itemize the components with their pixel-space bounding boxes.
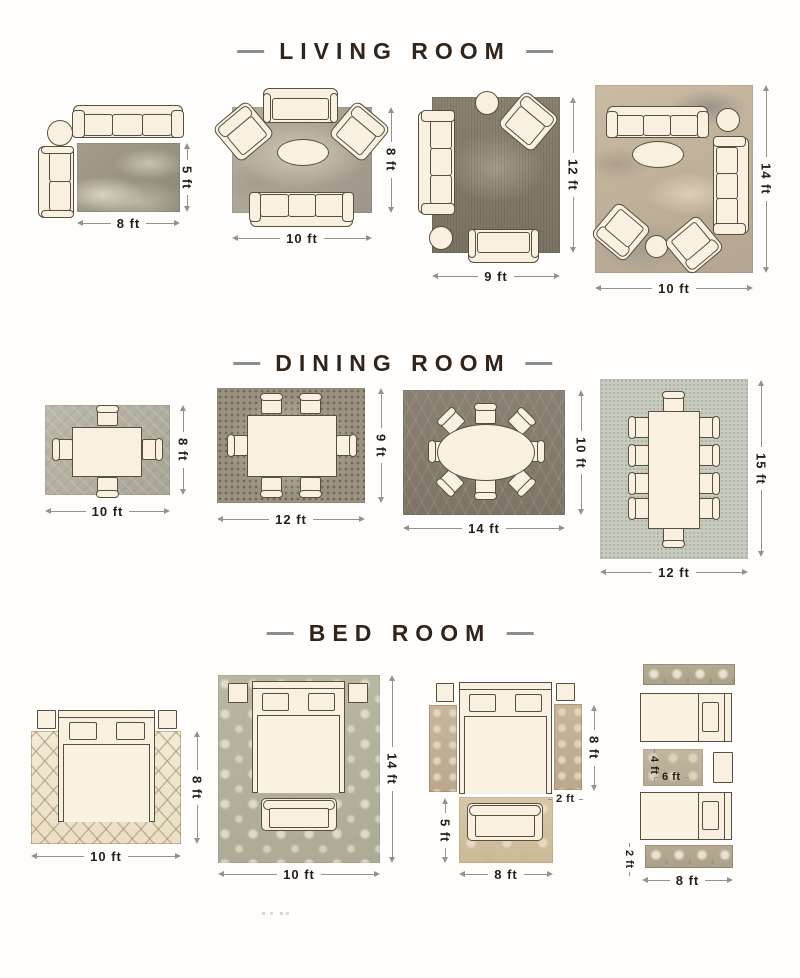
dimension-width: 14 ft — [403, 520, 565, 536]
arrow-down-icon — [442, 857, 448, 863]
dim-line — [37, 856, 84, 857]
dim-line — [445, 804, 446, 813]
dimension-width: 8 ft — [459, 866, 553, 882]
dimension-height: 8 ft — [175, 405, 191, 495]
headboard — [724, 694, 731, 741]
sofa-arm — [72, 110, 85, 138]
dim-line — [438, 276, 478, 277]
cushion — [142, 114, 173, 135]
duvet — [257, 715, 341, 793]
bed — [58, 710, 155, 822]
arrow-right-icon — [366, 235, 372, 241]
cushion — [112, 114, 143, 135]
sofa-arm — [263, 93, 272, 123]
arrow-right-icon — [727, 877, 733, 883]
dim-line — [197, 805, 198, 838]
sofa-arm — [249, 192, 261, 222]
cushion — [616, 115, 644, 136]
dim-line — [51, 511, 86, 512]
dining-chair — [261, 397, 282, 414]
sofa-cushions — [716, 147, 738, 225]
cushion — [430, 148, 453, 177]
headboard — [460, 683, 551, 690]
nightstand — [713, 752, 733, 783]
headboard — [253, 682, 344, 689]
dim-label: 5 ft — [180, 160, 195, 196]
dim-line — [224, 874, 277, 875]
dim-label: 8 ft — [488, 867, 524, 882]
runner-rug — [429, 705, 457, 792]
dim-line — [594, 711, 595, 730]
dim-line — [766, 201, 767, 267]
dining-chair — [632, 417, 649, 438]
sofa-arm — [342, 192, 354, 222]
arrow-down-icon — [180, 489, 186, 495]
dim-line — [128, 856, 175, 857]
round-ottoman — [475, 91, 499, 115]
dining-chair — [475, 479, 496, 496]
dining-chair — [142, 439, 159, 460]
dim-line — [581, 474, 582, 509]
runner-rug — [554, 704, 582, 790]
sofa-arm — [713, 136, 746, 147]
arrow-right-icon — [175, 853, 181, 859]
dim-tick — [579, 799, 583, 800]
runner-rug — [643, 664, 735, 685]
dimension-height: 5 ft — [179, 143, 195, 212]
arrow-right-icon — [547, 871, 553, 877]
dim-label: 12 ft — [269, 512, 313, 527]
dim-line — [313, 519, 359, 520]
sofa — [73, 105, 183, 138]
nightstand — [348, 683, 368, 703]
dim-label: 12 ft — [566, 153, 581, 197]
arrow-down-icon — [378, 497, 384, 503]
arrow-down-icon — [184, 206, 190, 212]
dim-label: 12 ft — [652, 565, 696, 580]
sofa-cushions — [49, 153, 71, 210]
sofa — [263, 88, 338, 123]
dining-chair — [261, 477, 282, 494]
sofa — [418, 111, 455, 214]
dim-line — [321, 874, 374, 875]
dim-line — [524, 874, 547, 875]
bench — [261, 798, 337, 831]
dim-label: 14 ft — [759, 157, 774, 201]
title-dash-icon — [237, 50, 264, 53]
arrow-down-icon — [591, 785, 597, 791]
arrow-down-icon — [763, 267, 769, 273]
dimension-width: 10 ft — [45, 503, 170, 519]
round-ottoman — [645, 235, 668, 258]
dimension-width: 10 ft — [31, 848, 181, 864]
dim-label: 10 ft — [574, 431, 589, 475]
dining-chair — [632, 445, 649, 466]
sofa-arm — [421, 110, 455, 122]
dining-chair — [97, 477, 118, 494]
dim-label: 10 ft — [280, 231, 324, 246]
dimension-width: 12 ft — [217, 511, 365, 527]
dim-line — [392, 681, 393, 747]
dining-chair — [97, 409, 118, 426]
arrow-right-icon — [359, 516, 365, 522]
title-dash-icon — [526, 362, 553, 365]
cushion — [260, 194, 289, 217]
dim-label: 10 ft — [277, 867, 321, 882]
arrow-down-icon — [194, 838, 200, 844]
pillow — [702, 801, 719, 830]
dim-line — [506, 528, 559, 529]
dimension-height: 10 ft — [573, 390, 589, 515]
arrow-right-icon — [374, 871, 380, 877]
bench-seat — [475, 815, 536, 838]
sofa-arm — [697, 111, 709, 138]
dimension-runner-length: 8 ft — [586, 705, 602, 791]
dimension-height: 15 ft — [753, 380, 769, 557]
oval-coffee-table — [277, 139, 329, 166]
sofa-arm — [171, 110, 184, 138]
sofa-cushions — [617, 115, 698, 136]
dim-line — [766, 91, 767, 157]
round-side-table — [47, 120, 73, 146]
dining-chair — [632, 473, 649, 494]
dim-tick — [685, 777, 689, 778]
arrow-down-icon — [388, 207, 394, 213]
dim-line — [409, 528, 462, 529]
cushion — [288, 194, 317, 217]
dim-line — [761, 386, 762, 447]
dim-line — [445, 848, 446, 857]
dimension-height: 14 ft — [384, 675, 400, 863]
cushion — [670, 115, 698, 136]
sofa — [250, 192, 353, 227]
pillow — [469, 694, 496, 712]
arrow-down-icon — [389, 857, 395, 863]
nightstand — [158, 710, 177, 729]
dim-label: 9 ft — [478, 269, 514, 284]
arrow-right-icon — [559, 525, 565, 531]
dim-label: 15 ft — [754, 447, 769, 491]
section-title-living-room: LIVING ROOM — [237, 38, 553, 65]
arrow-down-icon — [758, 551, 764, 557]
dim-line — [648, 880, 670, 881]
dining-table — [648, 411, 700, 529]
cushion — [716, 198, 738, 225]
headboard — [59, 711, 154, 718]
title-dash-icon — [267, 632, 294, 635]
dining-chair — [56, 439, 73, 460]
title-dash-icon — [506, 632, 533, 635]
dim-line — [381, 463, 382, 497]
dim-line — [324, 238, 366, 239]
settee — [468, 229, 539, 263]
dimension-foot-rug-height: 5 ft — [437, 798, 453, 863]
dim-line — [238, 238, 280, 239]
arrow-down-icon — [570, 247, 576, 253]
sofa-arm — [606, 111, 618, 138]
round-ottoman — [429, 226, 453, 250]
cushion — [430, 120, 453, 149]
section-heading: DINING ROOM — [275, 350, 510, 377]
arrow-right-icon — [554, 273, 560, 279]
dim-line — [696, 572, 742, 573]
dim-label: 10 ft — [652, 281, 696, 296]
loveseat — [38, 146, 74, 218]
dim-line — [187, 149, 188, 160]
dimension-height: 14 ft — [758, 85, 774, 273]
dim-line — [183, 468, 184, 489]
cushion — [430, 175, 453, 204]
dim-label: 5 ft — [438, 813, 453, 849]
dim-line — [696, 288, 747, 289]
bed — [459, 682, 552, 794]
dining-chair — [663, 527, 684, 544]
arrow-right-icon — [164, 508, 170, 514]
dimension-width: 9 ft — [432, 268, 560, 284]
dimension-runner-width: 2 ft — [548, 791, 588, 807]
dimension-mid-rug-width: 6 ft — [654, 769, 702, 785]
dim-line — [391, 113, 392, 142]
sofa-cushions — [84, 114, 173, 135]
dim-line — [581, 396, 582, 431]
pillow — [69, 722, 98, 740]
dining-chair — [231, 435, 248, 456]
dim-line — [183, 411, 184, 432]
sofa — [607, 106, 708, 138]
bench-seat — [269, 808, 330, 828]
dim-label: 14 ft — [462, 521, 506, 536]
pillow — [262, 693, 289, 711]
dimension-width: 8 ft — [77, 215, 180, 231]
sofa-arm — [713, 224, 746, 235]
cushion — [49, 181, 71, 211]
dim-tick — [629, 872, 630, 876]
sofa-arm — [531, 229, 539, 258]
dimension-height: 8 ft — [189, 731, 205, 844]
sofa-cushions — [260, 194, 343, 217]
dim-label: 9 ft — [374, 428, 389, 464]
dim-line — [391, 178, 392, 207]
twin-bed — [640, 792, 732, 840]
sofa-arm — [421, 203, 455, 215]
dim-label: 6 ft — [658, 771, 685, 783]
dim-line — [146, 223, 174, 224]
title-dash-icon — [526, 50, 553, 53]
dining-table — [72, 427, 142, 477]
dim-line — [705, 880, 727, 881]
rug-size-guide: LIVING ROOM 8 ft 5 ft — [0, 0, 800, 978]
dim-line — [381, 394, 382, 428]
dimension-runner-height: 2 ft — [621, 843, 637, 870]
dim-line — [761, 490, 762, 551]
dining-chair — [300, 477, 321, 494]
dining-chair — [663, 395, 684, 412]
arrow-right-icon — [742, 569, 748, 575]
dim-line — [573, 103, 574, 153]
cushion — [716, 147, 738, 174]
cushion — [83, 114, 114, 135]
dim-line — [83, 223, 111, 224]
cushion — [272, 98, 329, 120]
dimension-width: 10 ft — [218, 866, 380, 882]
dim-line — [129, 511, 164, 512]
nightstand — [228, 683, 248, 703]
dim-line — [594, 766, 595, 785]
runner-rug — [645, 845, 733, 868]
cushion — [643, 115, 671, 136]
dim-line — [601, 288, 652, 289]
cushion — [477, 232, 531, 254]
dim-label: 2 ft — [623, 847, 635, 872]
title-dash-icon — [233, 362, 260, 365]
dining-chair — [300, 397, 321, 414]
dim-label: 2 ft — [552, 793, 579, 805]
dim-label: 8 ft — [587, 730, 602, 766]
dining-chair — [699, 445, 716, 466]
cushion — [49, 152, 71, 182]
section-heading: BED ROOM — [309, 620, 492, 647]
dimension-width: 10 ft — [232, 230, 372, 246]
dim-label: 10 ft — [86, 504, 130, 519]
dim-line — [223, 519, 269, 520]
round-ottoman — [716, 108, 740, 132]
dim-line — [392, 791, 393, 857]
dim-line — [606, 572, 652, 573]
arrow-down-icon — [578, 509, 584, 515]
twin-bed — [640, 693, 732, 742]
dimension-height: 8 ft — [383, 107, 399, 213]
dining-chair — [699, 417, 716, 438]
sofa-arm — [468, 229, 476, 258]
pillow — [515, 694, 542, 712]
duvet — [63, 744, 150, 822]
duvet — [640, 693, 699, 742]
sofa-cushions — [430, 121, 453, 204]
dining-chair — [632, 498, 649, 519]
dim-line — [465, 874, 488, 875]
nightstand — [37, 710, 56, 729]
section-title-bed-room: BED ROOM — [267, 620, 534, 647]
dining-table — [247, 415, 337, 477]
headboard — [724, 793, 731, 839]
nightstand — [436, 683, 454, 702]
pillow — [308, 693, 335, 711]
dimension-width: 10 ft — [595, 280, 753, 296]
dim-line — [187, 195, 188, 206]
duvet — [640, 792, 699, 840]
bed — [252, 681, 345, 793]
dining-chair — [699, 473, 716, 494]
dining-chair — [699, 498, 716, 519]
section-title-dining-room: DINING ROOM — [233, 350, 552, 377]
dimension-height: 12 ft — [565, 97, 581, 253]
dim-label: 8 ft — [190, 770, 205, 806]
arrow-right-icon — [747, 285, 753, 291]
sofa — [713, 137, 749, 234]
cushion — [315, 194, 344, 217]
cushion — [716, 173, 738, 200]
sofa-arm — [330, 93, 339, 123]
pillow — [702, 702, 719, 731]
nightstand — [556, 683, 575, 701]
oval-dining-table — [437, 424, 535, 481]
dim-label: 14 ft — [385, 747, 400, 791]
section-heading: LIVING ROOM — [279, 38, 511, 65]
dimension-height: 9 ft — [373, 388, 389, 503]
dining-chair — [336, 435, 353, 456]
pillow — [116, 722, 145, 740]
dim-line — [514, 276, 554, 277]
sofa-arm — [41, 210, 74, 218]
oval-coffee-table — [632, 141, 684, 168]
arrow-right-icon — [174, 220, 180, 226]
faint-watermark-dots — [262, 912, 265, 915]
dim-label: 10 ft — [84, 849, 128, 864]
dining-chair — [475, 407, 496, 424]
dimension-width: 8 ft — [642, 872, 733, 888]
dimension-width: 12 ft — [600, 564, 748, 580]
dim-label: 8 ft — [670, 873, 706, 888]
sofa-arm — [41, 146, 74, 154]
dim-line — [197, 737, 198, 770]
duvet — [464, 716, 548, 794]
dim-label: 8 ft — [176, 432, 191, 468]
dim-line — [573, 197, 574, 247]
dim-label: 8 ft — [384, 142, 399, 178]
bench — [467, 803, 543, 841]
rug-living-8x5 — [77, 143, 180, 212]
dim-label: 8 ft — [111, 216, 147, 231]
